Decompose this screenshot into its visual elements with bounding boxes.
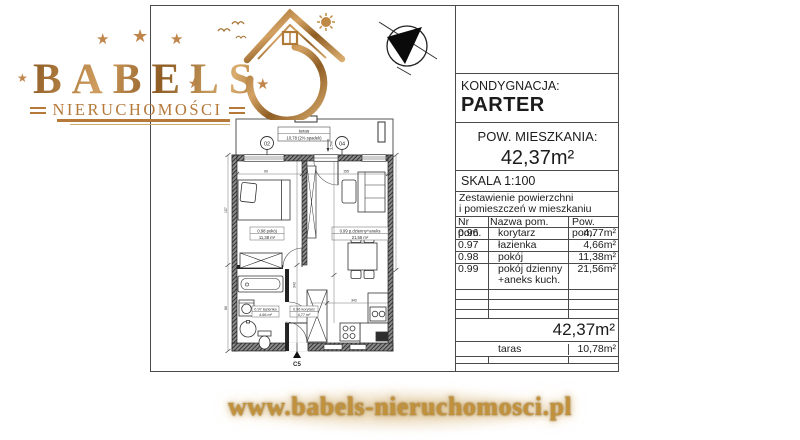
dim-label: 86 (224, 306, 228, 310)
slope-label: 1,5% (329, 140, 334, 150)
logo-underline-thin (70, 124, 230, 125)
bed-pillow (240, 182, 257, 202)
roof-window (283, 32, 297, 44)
window-marker-right: 04 (339, 141, 345, 147)
entrance-label: C5 (293, 361, 301, 368)
bird-icon (236, 36, 246, 38)
website-url[interactable]: www.babels-nieruchomosci.pl (0, 392, 800, 422)
sofa (358, 172, 385, 212)
corridor-label: 0.96 korytarz (293, 308, 315, 312)
fridge (376, 332, 388, 341)
title-block-empty-section (456, 5, 619, 74)
floor-label: KONDYGNACJA: (461, 79, 619, 93)
title-block: KONDYGNACJA: PARTER POW. MIESZKANIA: 42,… (455, 5, 619, 372)
star-icon: ★ (170, 32, 183, 47)
col-header-nr: Nr pom. (456, 217, 489, 227)
armchair (342, 180, 356, 203)
dining-table (348, 235, 377, 279)
areas-table-title-line2: i pomieszczeń w mieszkaniu (459, 204, 619, 215)
areas-table: Zestawienie powierzchni i pomieszczeń w … (456, 192, 619, 364)
scale-label: SKALA 1:100 (456, 171, 619, 192)
taras-name: taras (489, 344, 569, 355)
balcony-door (314, 155, 338, 185)
star-icon: ★ (17, 72, 28, 84)
living-window (362, 155, 386, 162)
floor-section: KONDYGNACJA: PARTER (456, 74, 619, 123)
bedroom-window (244, 155, 284, 162)
star-icon: ★ (132, 27, 148, 45)
dim-label: 157 (224, 207, 228, 213)
living-room: 0.99 p.dzienny+aneks 21,56 m² (332, 172, 388, 343)
babels-logo: ★ ★ ★ ★ ★ ★ BABELS NIERUCHOMOŚCI (0, 0, 360, 140)
swoosh-crescent (250, 47, 324, 120)
house-swoosh-icon (205, 8, 355, 120)
dim-label: 155 (343, 169, 349, 173)
bird-icon (232, 22, 244, 24)
living-area-label: 21,56 m² (352, 235, 369, 240)
table-row: 0.99 pokój dzienny +aneks kuch. 21,56m² (456, 264, 619, 290)
bathroom: 0.97 łazienka 4,66 m² (238, 276, 283, 349)
north-arrow-compass-icon (377, 20, 439, 78)
table-empty-row (456, 310, 619, 319)
entrance-arrow-icon (293, 351, 301, 358)
corridor: 0.96 korytarz 4,77 m² (290, 290, 327, 342)
stove (340, 323, 360, 341)
subtitle-dash-left (30, 107, 46, 114)
dim-label: 343 (292, 282, 296, 288)
kitchen (340, 293, 388, 343)
roof-inner (258, 25, 326, 59)
dim-label: 342 (351, 298, 357, 302)
bird-icon (218, 29, 230, 31)
kitchen-wall-niche (324, 345, 342, 350)
table-empty-row (456, 357, 619, 364)
toilet (258, 331, 271, 349)
bedroom: 0.98 pokój 11,38 m² (238, 180, 290, 268)
flyer-canvas: KONDYGNACJA: PARTER POW. MIESZKANIA: 42,… (0, 0, 800, 440)
floor-value: PARTER (461, 94, 619, 117)
area-label: POW. MIESZKANIA: (456, 129, 619, 144)
dim-label: 99 (264, 169, 268, 173)
sun-icon (317, 13, 335, 31)
areas-table-title: Zestawienie powierzchni i pomieszczeń w … (456, 192, 619, 217)
star-icon: ★ (96, 32, 109, 47)
entrance-door (286, 322, 307, 343)
apartment-area-section: POW. MIESZKANIA: 42,37m² (456, 123, 619, 171)
bath-area-label: 4,66 m² (259, 313, 273, 317)
total-area-value: 42,37m² (553, 320, 619, 340)
table-total-row: 42,37m² (456, 319, 619, 342)
bath-label: 0.97 łazienka (254, 308, 277, 312)
bedroom-area-label: 11,38 m² (259, 235, 276, 240)
living-label: 0.99 p.dzienny+aneks (340, 228, 381, 233)
terrace-pillar (378, 122, 385, 142)
bedroom-label: 0.98 pokój (257, 228, 276, 233)
area-value: 42,37m² (456, 147, 619, 170)
taras-row: taras 10,78m² (456, 342, 619, 357)
bedroom-door (283, 248, 302, 267)
table-empty-row (456, 300, 619, 310)
col-header-area: Pow. pom. (569, 217, 619, 227)
floor-plan: taras 10,78 (2% spadek) 02 04 1,5% (224, 110, 404, 370)
sink-tap (247, 321, 250, 324)
table-empty-row (456, 290, 619, 300)
kitchen-wall-niche (350, 345, 366, 350)
corridor-area-label: 4,77 m² (298, 313, 312, 317)
brand-subtitle: NIERUCHOMOŚCI (52, 100, 222, 120)
col-header-name: Nazwa pom. (489, 217, 569, 227)
taras-area: 10,78m² (569, 344, 619, 355)
window-marker-left: 02 (264, 141, 270, 147)
